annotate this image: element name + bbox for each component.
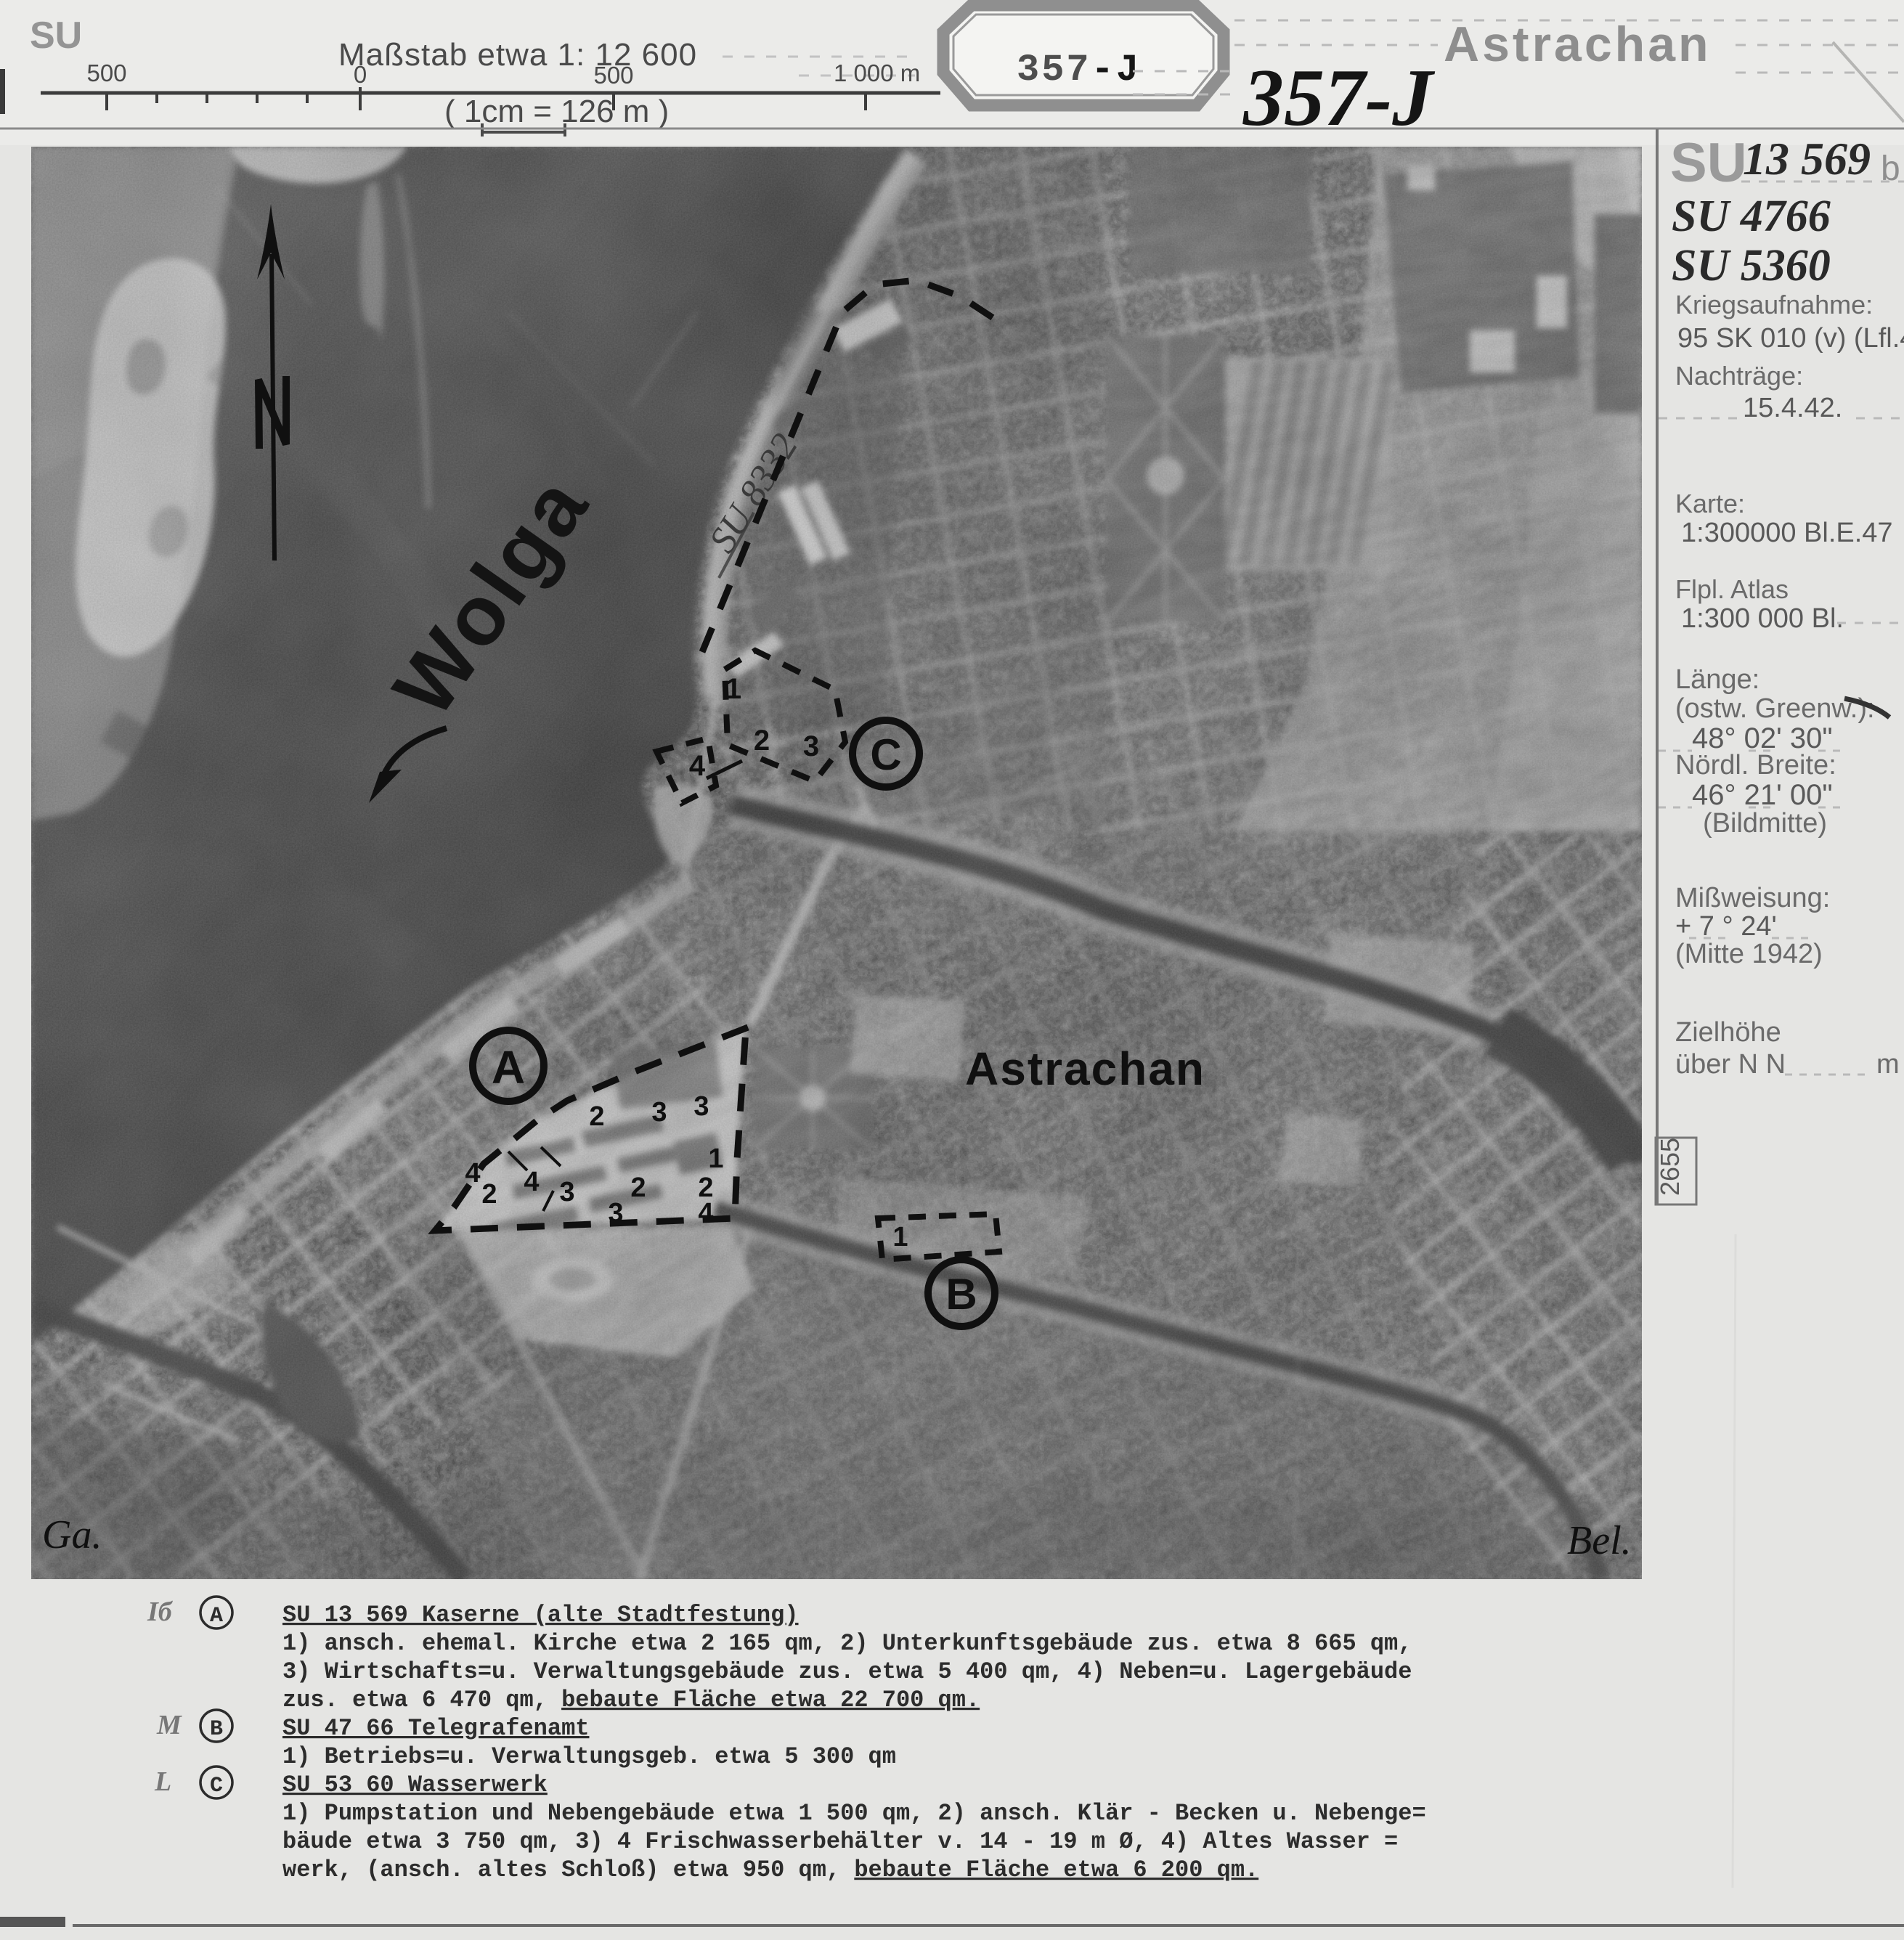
svg-text:(Mitte 1942): (Mitte 1942) — [1675, 939, 1823, 969]
svg-text:2: 2 — [630, 1173, 646, 1203]
svg-text:Astrachan: Astrachan — [965, 1043, 1205, 1095]
svg-text:4: 4 — [698, 1198, 713, 1228]
svg-text:3: 3 — [693, 1091, 709, 1122]
svg-text:zus. etwa 6 470 qm, bebaute Fl: zus. etwa 6 470 qm, bebaute Fläche etwa … — [282, 1687, 980, 1713]
svg-text:Karte:: Karte: — [1675, 489, 1745, 518]
svg-text:3) Wirtschafts=u. Verwaltungsg: 3) Wirtschafts=u. Verwaltungsgebäude zus… — [282, 1658, 1412, 1685]
svg-text:1) ansch. ehemal. Kirche etwa: 1) ansch. ehemal. Kirche etwa 2 165 qm, … — [282, 1630, 1412, 1657]
svg-text:1:300000 Bl.E.47: 1:300000 Bl.E.47 — [1681, 518, 1893, 548]
svg-text:SU 13 569 Kaserne (alte Stadtf: SU 13 569 Kaserne (alte Stadtfestung) — [282, 1602, 799, 1629]
svg-text:werk, (ansch. altes Schloß) et: werk, (ansch. altes Schloß) etwa 950 qm,… — [282, 1857, 1258, 1883]
svg-text:500: 500 — [593, 62, 633, 89]
svg-text:Zielhöhe: Zielhöhe — [1675, 1017, 1781, 1048]
svg-text:357-J: 357-J — [1242, 53, 1435, 143]
svg-text:Kriegsaufnahme:: Kriegsaufnahme: — [1675, 290, 1873, 319]
svg-text:1: 1 — [725, 673, 741, 705]
svg-text:Flpl. Atlas: Flpl. Atlas — [1675, 574, 1789, 604]
svg-text:M: M — [156, 1710, 182, 1740]
svg-text:4: 4 — [689, 750, 706, 782]
svg-text:Ga.: Ga. — [42, 1512, 102, 1557]
svg-text:B: B — [210, 1717, 223, 1742]
svg-text:1) Betriebs=u. Verwaltungsgeb.: 1) Betriebs=u. Verwaltungsgeb. etwa 5 30… — [282, 1743, 896, 1770]
svg-text:Mißweisung:: Mißweisung: — [1675, 883, 1830, 913]
svg-text:m: m — [1876, 1049, 1900, 1080]
svg-text:B: B — [945, 1270, 977, 1319]
svg-text:500: 500 — [86, 60, 126, 86]
svg-text:C: C — [210, 1774, 223, 1798]
svg-text:Nachträge:: Nachträge: — [1675, 361, 1803, 391]
svg-text:15.4.42.: 15.4.42. — [1743, 393, 1842, 423]
svg-text:Maßstab etwa 1: 12 600: Maßstab etwa 1: 12 600 — [338, 37, 697, 73]
svg-text:2655: 2655 — [1655, 1138, 1685, 1196]
svg-text:2: 2 — [754, 725, 770, 757]
svg-text:46° 21' 00": 46° 21' 00" — [1692, 779, 1833, 811]
svg-text:3: 3 — [608, 1198, 623, 1228]
svg-text:SU 47 66 Telegrafenamt: SU 47 66 Telegrafenamt — [282, 1715, 589, 1742]
svg-text:Bel.: Bel. — [1567, 1518, 1632, 1563]
svg-text:über N N: über N N — [1675, 1049, 1786, 1080]
svg-text:95 SK 010 (v) (Lfl.4: 95 SK 010 (v) (Lfl.4 — [1677, 323, 1904, 354]
svg-text:1) Pumpstation und Nebengebäud: 1) Pumpstation und Nebengebäude etwa 1 5… — [282, 1800, 1426, 1827]
svg-text:357-J: 357-J — [1017, 49, 1141, 91]
svg-text:A: A — [492, 1041, 525, 1093]
svg-text:3: 3 — [651, 1097, 667, 1128]
svg-text:C: C — [870, 730, 901, 779]
svg-text:L: L — [154, 1766, 171, 1797]
svg-text:2: 2 — [589, 1101, 604, 1132]
svg-text:Iб: Iб — [147, 1597, 174, 1627]
svg-text:1:300 000 Bl.: 1:300 000 Bl. — [1681, 603, 1844, 634]
svg-text:SU 53 60 Wasserwerk: SU 53 60 Wasserwerk — [282, 1772, 548, 1798]
svg-text:bäude etwa 3 750 qm, 3) 4 Fris: bäude etwa 3 750 qm, 3) 4 Frischwasserbe… — [282, 1828, 1398, 1855]
svg-text:( 1cm = 126 m ): ( 1cm = 126 m ) — [444, 94, 669, 129]
svg-text:4: 4 — [465, 1158, 480, 1189]
svg-text:3: 3 — [803, 730, 819, 762]
svg-text:1: 1 — [708, 1144, 723, 1174]
svg-text:13 569: 13 569 — [1743, 133, 1871, 184]
svg-text:3: 3 — [559, 1177, 574, 1207]
svg-text:Länge:: Länge: — [1675, 664, 1759, 695]
svg-text:Astrachan: Astrachan — [1444, 17, 1712, 72]
svg-text:1: 1 — [892, 1222, 908, 1252]
svg-text:SU: SU — [1670, 132, 1747, 194]
svg-text:Nördl. Breite:: Nördl. Breite: — [1675, 750, 1836, 781]
svg-text:(Bildmitte): (Bildmitte) — [1703, 808, 1827, 839]
svg-text:SU 5360: SU 5360 — [1672, 241, 1831, 290]
svg-text:2: 2 — [481, 1179, 497, 1210]
svg-text:0: 0 — [354, 61, 367, 88]
svg-text:A: A — [210, 1604, 223, 1629]
svg-text:SU 4766: SU 4766 — [1672, 192, 1831, 241]
svg-text:1 000 m: 1 000 m — [834, 60, 920, 86]
svg-text:SU: SU — [30, 15, 82, 57]
